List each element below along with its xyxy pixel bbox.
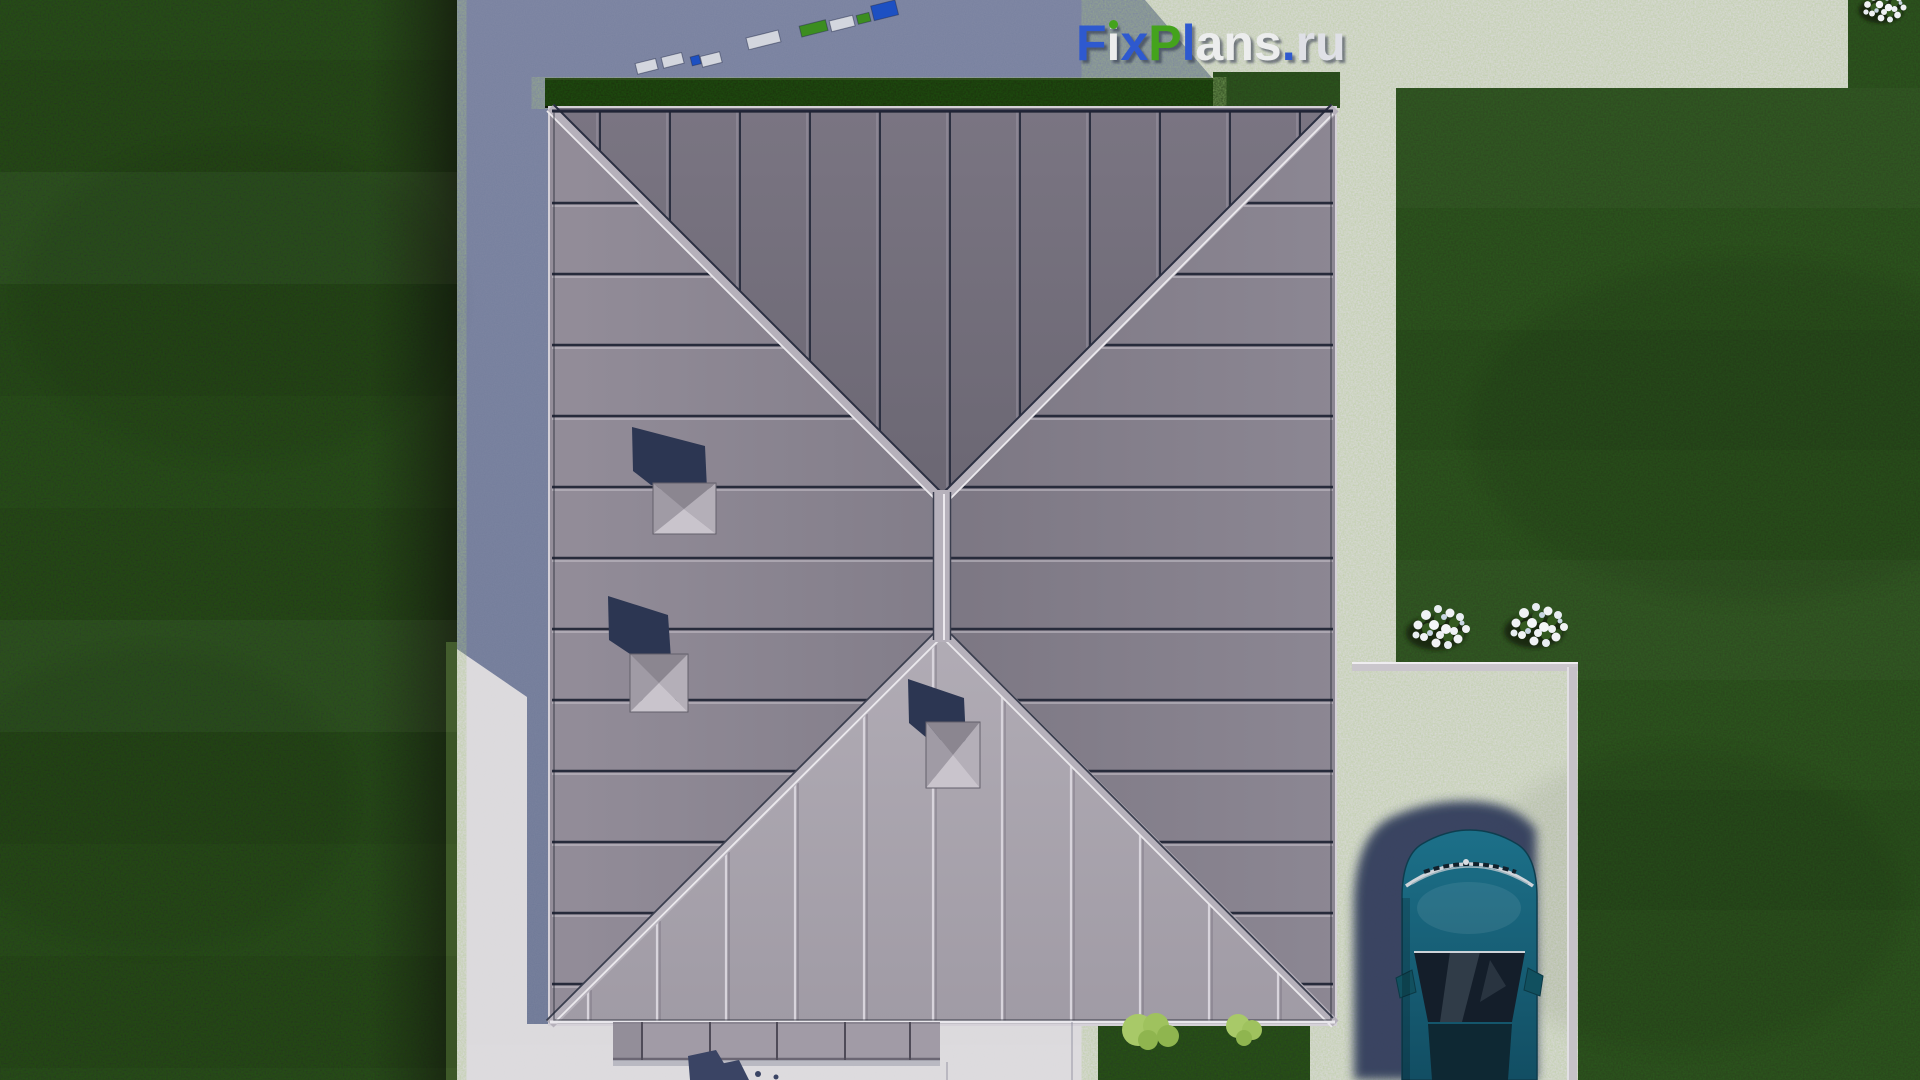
hedge [545, 78, 1213, 108]
logo-letter: F [1076, 14, 1107, 72]
logo-letter: s [1254, 14, 1282, 72]
logo-letter: . [1282, 14, 1296, 72]
logo-letter: x [1120, 14, 1148, 72]
blue-garden-object [690, 55, 701, 66]
logo-letter: P [1148, 14, 1181, 72]
gable-wall-band [613, 1022, 940, 1066]
logo-letter: l [1182, 14, 1196, 72]
logo-letter: u [1315, 14, 1346, 72]
lawn-left [0, 0, 460, 1080]
parked-car [1354, 801, 1543, 1080]
grass-wedge-top [1213, 72, 1340, 108]
logo-letter: n [1223, 14, 1254, 72]
logo-letter: r [1296, 14, 1315, 72]
fixplans-watermark: FixPlans.ru [1076, 14, 1346, 72]
hip-roof [547, 105, 1336, 1028]
scene-canvas [0, 0, 1920, 1080]
hood-highlight [1417, 882, 1521, 934]
aerial-house-render: FixPlans.ru [0, 0, 1920, 1080]
logo-letter: a [1196, 14, 1224, 72]
roof-center-ridge [934, 490, 950, 642]
car-roof [1428, 1024, 1512, 1080]
logo-letter: i [1107, 14, 1121, 72]
hood-emblem [1463, 859, 1469, 865]
body-side-shade [1402, 898, 1410, 1080]
